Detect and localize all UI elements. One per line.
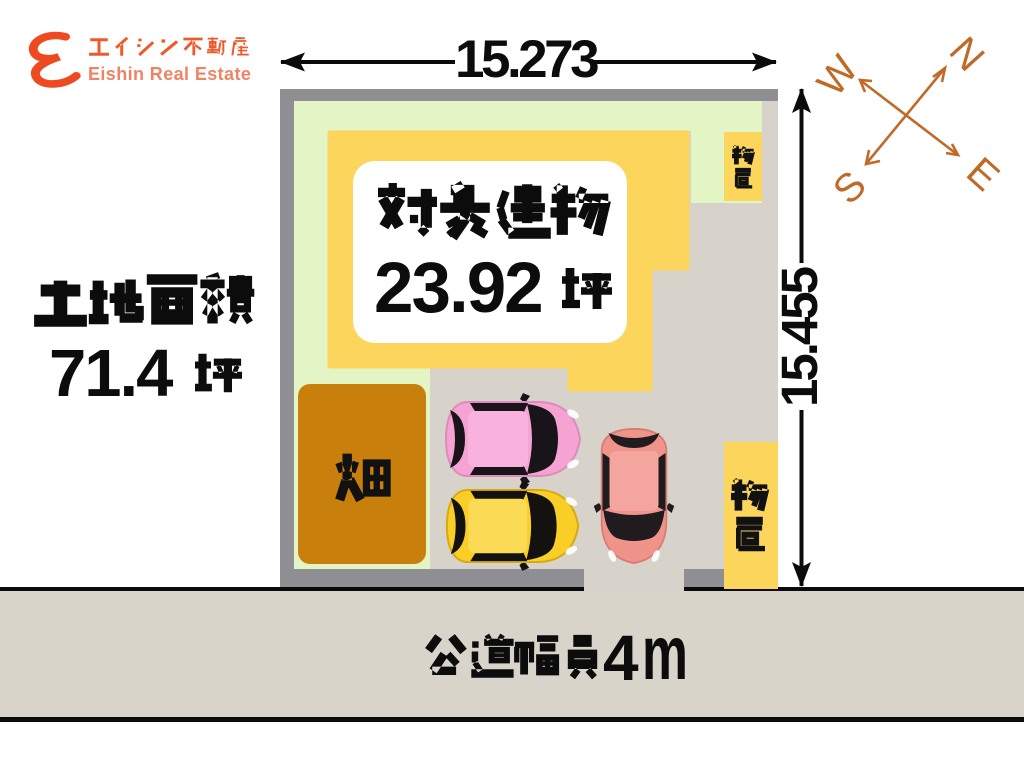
svg-text:W: W [809,47,867,104]
svg-text:E: E [958,149,1007,200]
svg-text:S: S [825,163,875,213]
svg-text:N: N [941,29,993,80]
svg-text:15.455: 15.455 [771,267,828,407]
svg-text:4: 4 [603,622,639,694]
